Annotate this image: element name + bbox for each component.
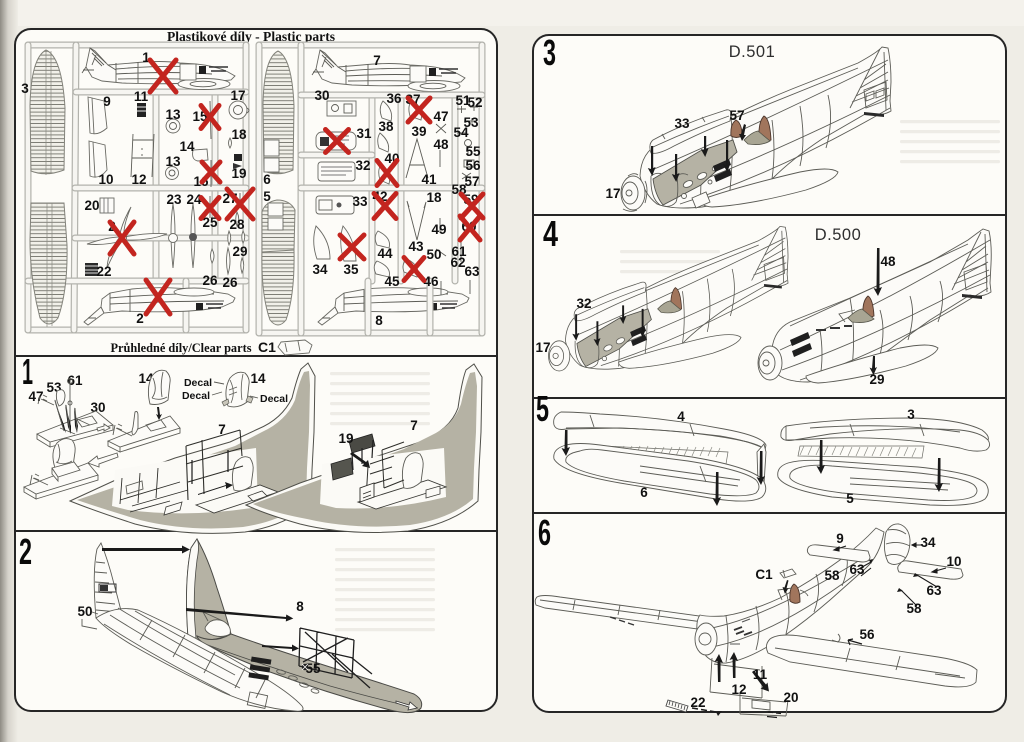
svg-text:8: 8 [375,313,383,328]
svg-text:11: 11 [134,89,149,104]
svg-text:8: 8 [296,599,304,614]
svg-text:13: 13 [165,107,181,122]
svg-text:57: 57 [464,174,479,189]
svg-text:44: 44 [377,246,393,261]
svg-text:3: 3 [21,81,29,96]
svg-text:C1: C1 [258,339,276,355]
svg-text:22: 22 [690,695,705,710]
svg-text:63: 63 [926,583,942,598]
svg-text:33: 33 [674,116,690,131]
svg-text:2: 2 [19,531,32,572]
svg-text:47: 47 [28,389,43,404]
svg-text:22: 22 [96,264,111,279]
svg-text:50: 50 [77,604,92,619]
svg-text:9: 9 [836,531,844,546]
svg-text:49: 49 [431,222,446,237]
svg-text:9: 9 [103,94,111,109]
svg-text:39: 39 [411,124,426,139]
svg-text:34: 34 [312,262,328,277]
svg-text:Decal: Decal [182,390,210,402]
svg-text:17: 17 [535,340,550,355]
svg-text:29: 29 [232,244,247,259]
svg-text:6: 6 [538,512,551,553]
svg-text:D.500: D.500 [815,226,862,244]
svg-text:48: 48 [880,254,896,269]
svg-text:Decal: Decal [260,393,288,405]
svg-text:7: 7 [218,422,226,437]
svg-text:10: 10 [946,554,961,569]
svg-text:45: 45 [384,274,400,289]
svg-text:30: 30 [314,88,329,103]
svg-text:Decal: Decal [184,377,212,389]
svg-text:55: 55 [465,144,481,159]
svg-text:19: 19 [338,431,353,446]
svg-text:47: 47 [433,109,448,124]
svg-text:5: 5 [536,388,549,429]
svg-text:4: 4 [543,213,558,254]
svg-text:36: 36 [386,91,402,106]
svg-text:D.501: D.501 [729,43,776,61]
svg-text:38: 38 [378,119,394,134]
svg-text:1: 1 [22,351,33,392]
svg-text:50: 50 [426,247,441,262]
svg-text:Průhledné díly/Clear parts: Průhledné díly/Clear parts [111,340,252,355]
svg-text:10: 10 [98,172,113,187]
svg-text:18: 18 [231,127,247,142]
svg-text:7: 7 [410,418,418,433]
svg-text:32: 32 [355,158,370,173]
svg-text:26: 26 [202,273,218,288]
svg-text:14: 14 [179,139,195,154]
svg-text:C1: C1 [755,567,773,582]
svg-text:17: 17 [230,88,245,103]
svg-text:12: 12 [131,172,146,187]
svg-text:41: 41 [421,172,437,187]
svg-text:18: 18 [426,190,442,205]
svg-text:14: 14 [250,371,266,386]
svg-text:29: 29 [869,372,884,387]
svg-text:26: 26 [222,275,238,290]
svg-text:17: 17 [605,186,620,201]
svg-text:33: 33 [352,194,368,209]
svg-text:23: 23 [166,192,182,207]
svg-text:11: 11 [753,667,768,682]
svg-text:6: 6 [640,485,648,500]
svg-text:52: 52 [467,95,482,110]
svg-text:54: 54 [453,125,469,140]
svg-text:58: 58 [906,601,922,616]
svg-text:32: 32 [576,296,591,311]
svg-text:6: 6 [263,172,271,187]
svg-text:12: 12 [731,682,746,697]
svg-text:20: 20 [84,198,99,213]
svg-text:31: 31 [356,126,372,141]
svg-text:3: 3 [543,32,556,73]
svg-text:13: 13 [165,154,181,169]
svg-text:56: 56 [465,158,481,173]
svg-text:34: 34 [920,535,936,550]
svg-text:43: 43 [408,239,424,254]
svg-text:5: 5 [263,189,271,204]
svg-text:4: 4 [677,409,685,424]
svg-text:3: 3 [907,407,915,422]
svg-text:5: 5 [846,491,854,506]
svg-text:28: 28 [229,217,245,232]
svg-text:2: 2 [136,311,144,326]
svg-text:35: 35 [343,262,359,277]
svg-text:7: 7 [373,53,381,68]
svg-text:20: 20 [783,690,798,705]
svg-text:58: 58 [824,568,840,583]
svg-text:62: 62 [450,255,465,270]
svg-text:63: 63 [849,562,865,577]
svg-text:56: 56 [859,627,875,642]
svg-text:19: 19 [231,166,246,181]
svg-text:48: 48 [433,137,449,152]
svg-text:63: 63 [464,264,480,279]
svg-text:57: 57 [729,108,744,123]
